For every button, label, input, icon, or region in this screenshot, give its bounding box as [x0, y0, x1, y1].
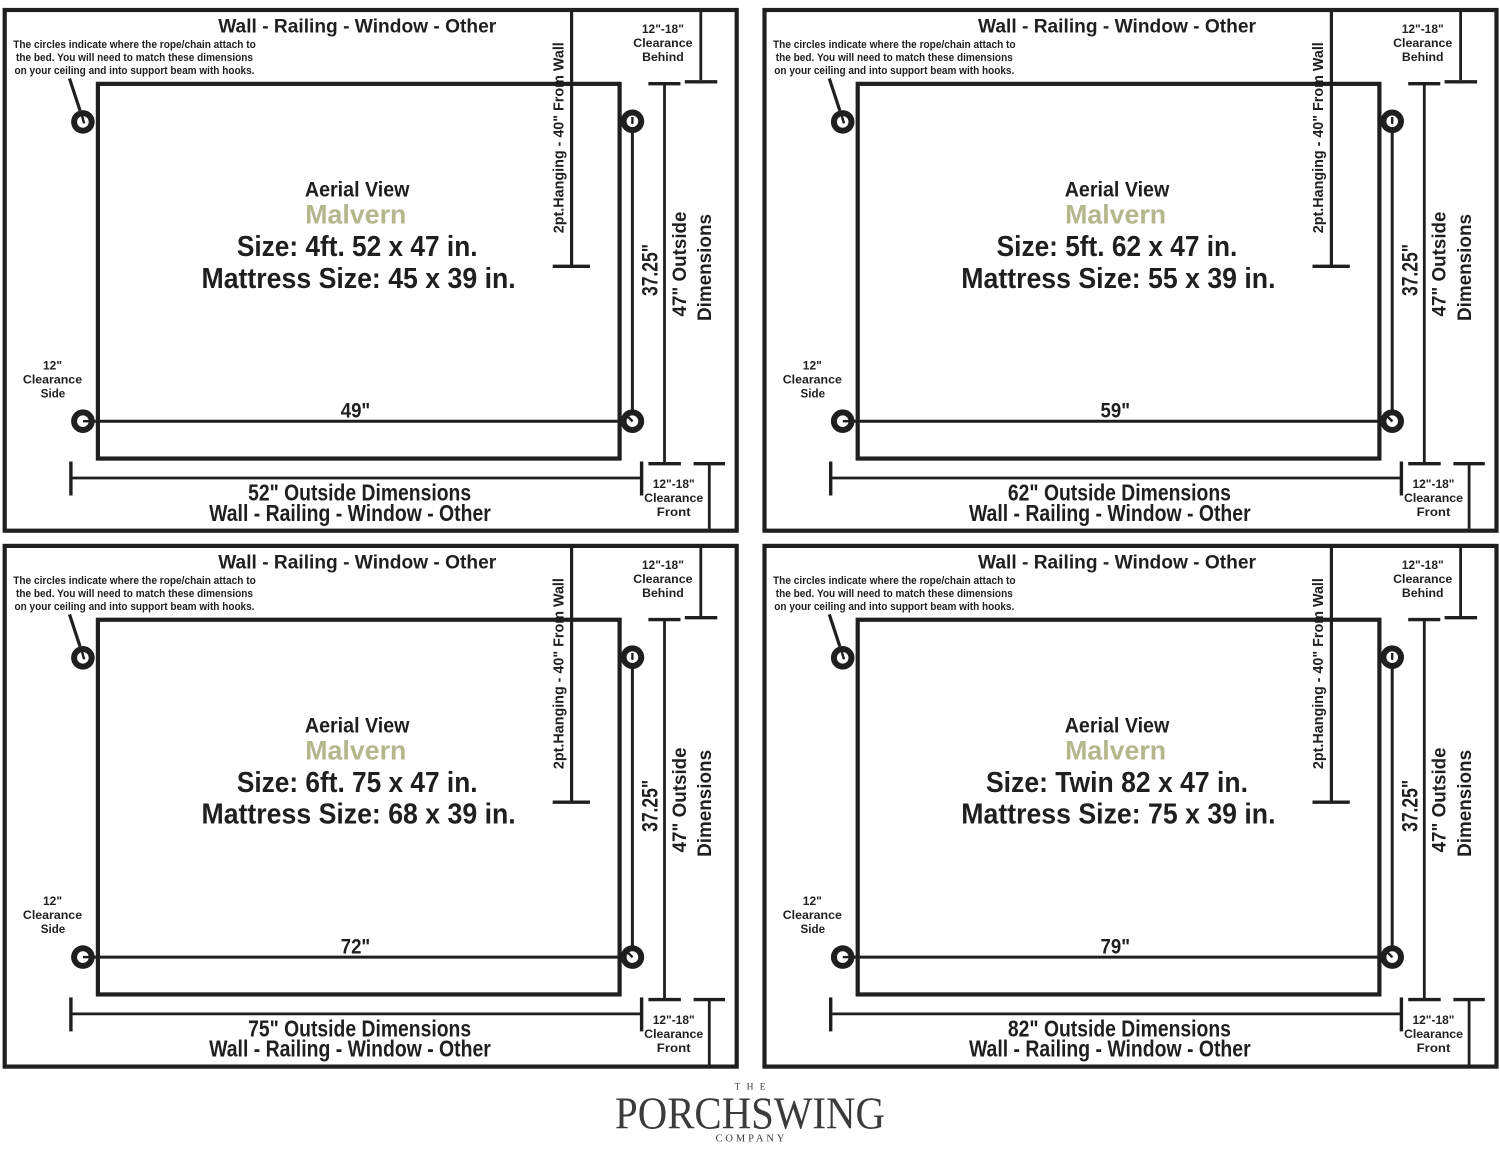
svg-text:49": 49" — [341, 400, 371, 423]
svg-text:Clearance: Clearance — [783, 908, 843, 922]
svg-text:Side: Side — [41, 922, 66, 936]
svg-text:the bed. You will need to matc: the bed. You will need to match these di… — [16, 588, 253, 600]
svg-text:The circles indicate where the: The circles indicate where the rope/chai… — [773, 39, 1016, 51]
svg-text:Malvern: Malvern — [1065, 735, 1166, 765]
svg-text:PORCHSWING: PORCHSWING — [615, 1088, 885, 1138]
svg-text:12": 12" — [43, 894, 62, 908]
svg-text:47" Outside: 47" Outside — [1430, 747, 1451, 852]
svg-text:The circles indicate where the: The circles indicate where the rope/chai… — [13, 575, 256, 587]
svg-text:The circles indicate where the: The circles indicate where the rope/chai… — [773, 575, 1016, 587]
svg-text:Dimensions: Dimensions — [1455, 750, 1476, 857]
svg-text:Behind: Behind — [1402, 50, 1444, 64]
svg-text:12": 12" — [803, 894, 822, 908]
svg-text:Wall - Railing - Window - Othe: Wall - Railing - Window - Other — [218, 15, 496, 37]
svg-text:Clearance: Clearance — [783, 372, 843, 386]
svg-text:on your ceiling and into suppo: on your ceiling and into support beam wi… — [774, 65, 1014, 77]
svg-text:2pt.Hanging - 40" From Wall: 2pt.Hanging - 40" From Wall — [550, 42, 567, 233]
svg-text:Clearance: Clearance — [23, 908, 83, 922]
svg-text:Size: 5ft. 62 x 47 in.: Size: 5ft. 62 x 47 in. — [997, 231, 1238, 263]
svg-text:37.25": 37.25" — [638, 244, 663, 296]
svg-text:79": 79" — [1101, 935, 1131, 958]
svg-text:12"-18": 12"-18" — [1413, 477, 1455, 491]
svg-text:Aerial View: Aerial View — [1065, 715, 1170, 738]
svg-text:Aerial View: Aerial View — [1065, 179, 1170, 202]
svg-text:on your ceiling and into suppo: on your ceiling and into support beam wi… — [15, 601, 255, 613]
svg-text:Mattress Size: 75 x 39 in.: Mattress Size: 75 x 39 in. — [961, 799, 1275, 831]
svg-text:Front: Front — [657, 505, 691, 519]
svg-text:2pt.Hanging - 40" From Wall: 2pt.Hanging - 40" From Wall — [1310, 42, 1327, 233]
svg-text:Size: Twin 82 x 47 in.: Size: Twin 82 x 47 in. — [986, 767, 1248, 799]
svg-text:Wall - Railing - Window - Othe: Wall - Railing - Window - Other — [969, 500, 1251, 526]
svg-text:Wall - Railing - Window - Othe: Wall - Railing - Window - Other — [209, 500, 491, 526]
svg-text:Clearance: Clearance — [644, 491, 703, 505]
svg-text:Mattress Size: 45 x 39 in.: Mattress Size: 45 x 39 in. — [202, 263, 516, 295]
svg-text:Front: Front — [1417, 505, 1451, 519]
svg-text:Behind: Behind — [642, 586, 684, 600]
svg-text:the bed. You will need to matc: the bed. You will need to match these di… — [16, 52, 253, 64]
svg-text:47" Outside: 47" Outside — [670, 212, 691, 317]
svg-text:12"-18": 12"-18" — [653, 1013, 695, 1027]
svg-text:Clearance: Clearance — [644, 1027, 703, 1041]
svg-text:72": 72" — [341, 935, 371, 958]
svg-text:Dimensions: Dimensions — [1455, 214, 1476, 321]
svg-text:Mattress Size: 68 x 39 in.: Mattress Size: 68 x 39 in. — [202, 799, 516, 831]
svg-text:Clearance: Clearance — [1404, 491, 1463, 505]
svg-text:Clearance: Clearance — [1393, 572, 1453, 586]
svg-text:Clearance: Clearance — [23, 372, 83, 386]
svg-text:Size: 4ft. 52 x 47 in.: Size: 4ft. 52 x 47 in. — [237, 231, 478, 263]
svg-text:Size: 6ft. 75 x 47 in.: Size: 6ft. 75 x 47 in. — [237, 767, 478, 799]
svg-text:on your ceiling and into suppo: on your ceiling and into support beam wi… — [15, 65, 255, 77]
svg-text:Wall - Railing - Window - Othe: Wall - Railing - Window - Other — [218, 551, 496, 573]
svg-text:12"-18": 12"-18" — [1402, 22, 1444, 36]
svg-text:Clearance: Clearance — [1404, 1027, 1463, 1041]
svg-text:Clearance: Clearance — [633, 572, 693, 586]
svg-text:Wall - Railing - Window - Othe: Wall - Railing - Window - Other — [969, 1036, 1251, 1062]
svg-text:The circles indicate where the: The circles indicate where the rope/chai… — [13, 39, 256, 51]
svg-text:Side: Side — [801, 386, 826, 400]
svg-text:12"-18": 12"-18" — [653, 477, 695, 491]
svg-text:Behind: Behind — [642, 50, 684, 64]
svg-text:Malvern: Malvern — [1065, 199, 1166, 229]
svg-text:on your ceiling and into suppo: on your ceiling and into support beam wi… — [774, 601, 1014, 613]
svg-text:Dimensions: Dimensions — [695, 750, 716, 857]
svg-text:Behind: Behind — [1402, 586, 1444, 600]
svg-text:Malvern: Malvern — [305, 735, 406, 765]
svg-text:the bed. You will need to matc: the bed. You will need to match these di… — [776, 588, 1013, 600]
svg-text:Clearance: Clearance — [633, 36, 693, 50]
svg-text:Mattress Size: 55 x 39 in.: Mattress Size: 55 x 39 in. — [961, 263, 1275, 295]
svg-text:Aerial View: Aerial View — [305, 715, 410, 738]
svg-text:Wall - Railing - Window - Othe: Wall - Railing - Window - Other — [978, 551, 1256, 573]
svg-text:37.25": 37.25" — [1397, 244, 1422, 296]
svg-text:Front: Front — [1417, 1041, 1451, 1055]
svg-text:59": 59" — [1101, 400, 1131, 423]
svg-text:12"-18": 12"-18" — [642, 558, 684, 572]
svg-text:12"-18": 12"-18" — [642, 22, 684, 36]
svg-text:12": 12" — [803, 358, 822, 372]
svg-text:the bed. You will need to matc: the bed. You will need to match these di… — [776, 52, 1013, 64]
svg-text:47" Outside: 47" Outside — [670, 747, 691, 852]
svg-text:37.25": 37.25" — [1397, 780, 1422, 832]
svg-text:12"-18": 12"-18" — [1413, 1013, 1455, 1027]
svg-text:12": 12" — [43, 358, 62, 372]
svg-text:47" Outside: 47" Outside — [1430, 212, 1451, 317]
svg-text:37.25": 37.25" — [638, 780, 663, 832]
svg-text:Aerial View: Aerial View — [305, 179, 410, 202]
svg-text:2pt.Hanging - 40" From Wall: 2pt.Hanging - 40" From Wall — [550, 578, 567, 769]
svg-text:Side: Side — [801, 922, 826, 936]
svg-text:Front: Front — [657, 1041, 691, 1055]
svg-text:Dimensions: Dimensions — [695, 214, 716, 321]
svg-text:Wall - Railing - Window - Othe: Wall - Railing - Window - Other — [209, 1036, 491, 1062]
svg-text:2pt.Hanging - 40" From Wall: 2pt.Hanging - 40" From Wall — [1310, 578, 1327, 769]
svg-text:12"-18": 12"-18" — [1402, 558, 1444, 572]
svg-text:Clearance: Clearance — [1393, 36, 1453, 50]
svg-text:Malvern: Malvern — [305, 199, 406, 229]
svg-text:Wall - Railing - Window - Othe: Wall - Railing - Window - Other — [978, 15, 1256, 37]
svg-text:Side: Side — [41, 386, 66, 400]
